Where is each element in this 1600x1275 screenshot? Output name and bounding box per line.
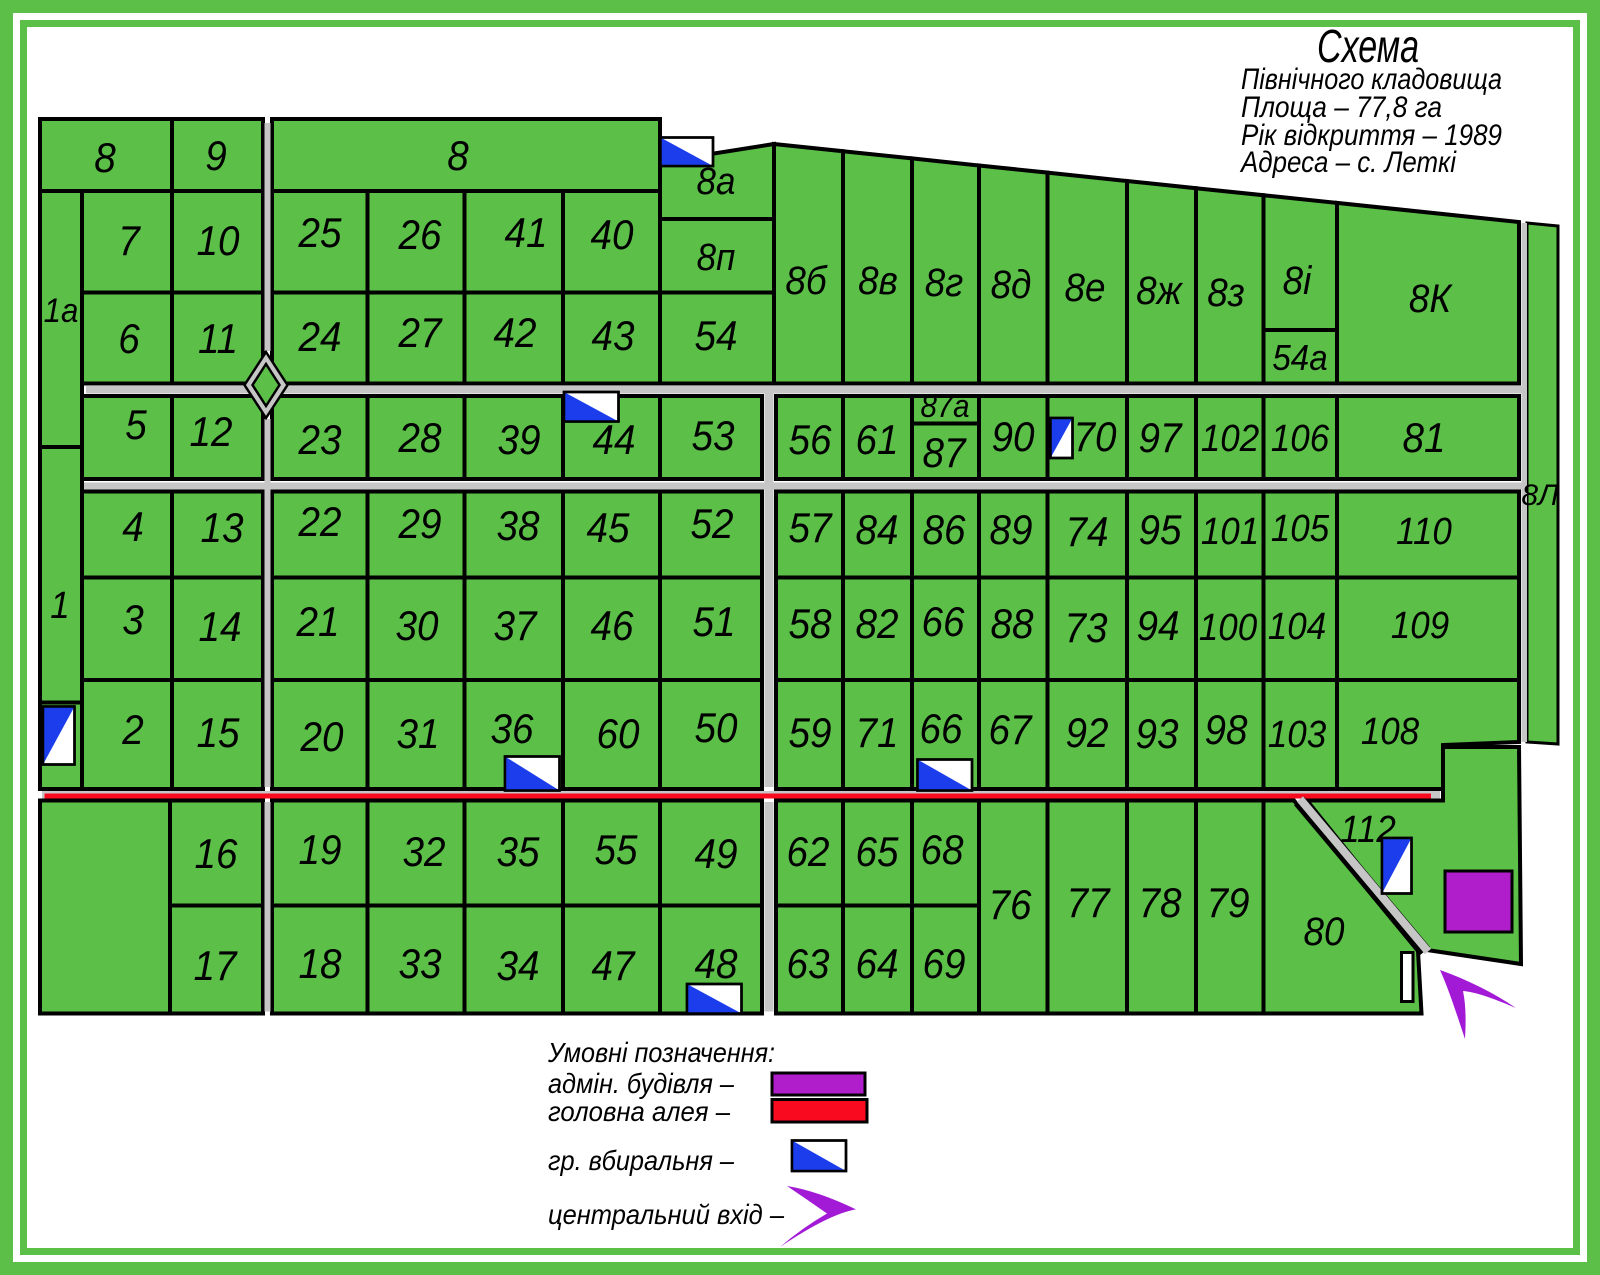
svg-text:109: 109 xyxy=(1391,604,1449,647)
svg-text:74: 74 xyxy=(1066,507,1109,555)
svg-text:8з: 8з xyxy=(1207,271,1245,316)
svg-text:92: 92 xyxy=(1066,708,1109,756)
svg-text:63: 63 xyxy=(787,939,831,987)
svg-text:59: 59 xyxy=(789,708,832,756)
svg-text:39: 39 xyxy=(498,415,541,463)
svg-text:14: 14 xyxy=(199,602,242,650)
svg-text:8К: 8К xyxy=(1409,277,1453,322)
svg-text:73: 73 xyxy=(1065,603,1109,651)
svg-text:11: 11 xyxy=(198,314,238,362)
svg-text:адмін. будівля –: адмін. будівля – xyxy=(548,1068,734,1099)
svg-text:46: 46 xyxy=(591,601,635,649)
svg-text:18: 18 xyxy=(299,939,343,987)
svg-text:6: 6 xyxy=(118,314,140,362)
svg-text:98: 98 xyxy=(1205,705,1249,753)
svg-text:25: 25 xyxy=(298,208,342,256)
svg-text:40: 40 xyxy=(591,210,635,258)
svg-text:105: 105 xyxy=(1271,507,1330,550)
svg-text:13: 13 xyxy=(201,503,245,551)
svg-text:8в: 8в xyxy=(858,259,898,304)
svg-text:36: 36 xyxy=(491,704,535,752)
svg-text:101: 101 xyxy=(1201,510,1259,553)
svg-text:76: 76 xyxy=(989,880,1033,928)
svg-text:38: 38 xyxy=(497,501,541,549)
svg-text:21: 21 xyxy=(296,597,340,645)
svg-text:48: 48 xyxy=(695,939,739,987)
svg-text:82: 82 xyxy=(856,599,899,647)
svg-text:26: 26 xyxy=(398,210,442,258)
svg-text:87: 87 xyxy=(923,428,967,476)
svg-text:53: 53 xyxy=(692,411,736,459)
svg-text:110: 110 xyxy=(1396,510,1452,553)
svg-text:9: 9 xyxy=(205,131,226,179)
svg-text:58: 58 xyxy=(789,599,833,647)
svg-text:54: 54 xyxy=(695,311,738,359)
svg-text:61: 61 xyxy=(856,415,899,463)
svg-text:гр. вбиральня –: гр. вбиральня – xyxy=(548,1145,734,1176)
svg-text:69: 69 xyxy=(923,939,966,987)
svg-text:10: 10 xyxy=(197,216,241,264)
svg-text:Адреса – с. Леткі: Адреса – с. Леткі xyxy=(1239,146,1457,179)
svg-text:15: 15 xyxy=(197,708,241,756)
svg-text:84: 84 xyxy=(856,505,899,553)
svg-text:64: 64 xyxy=(856,939,899,987)
svg-text:57: 57 xyxy=(789,503,833,551)
svg-text:12: 12 xyxy=(190,407,233,455)
svg-text:100: 100 xyxy=(1199,606,1257,649)
svg-text:27: 27 xyxy=(398,308,443,356)
svg-text:45: 45 xyxy=(587,503,631,551)
svg-text:16: 16 xyxy=(195,829,239,877)
svg-text:головна алея –: головна алея – xyxy=(548,1096,730,1127)
svg-text:8Л: 8Л xyxy=(1521,479,1559,512)
svg-text:22: 22 xyxy=(298,497,342,545)
svg-text:89: 89 xyxy=(990,505,1033,553)
svg-text:8ж: 8ж xyxy=(1136,269,1183,314)
svg-text:центральний вхід –: центральний вхід – xyxy=(548,1199,784,1230)
svg-text:4: 4 xyxy=(122,502,143,550)
svg-text:94: 94 xyxy=(1137,601,1180,649)
svg-text:108: 108 xyxy=(1361,710,1420,753)
svg-text:51: 51 xyxy=(693,597,736,645)
svg-text:104: 104 xyxy=(1268,605,1326,648)
svg-text:19: 19 xyxy=(299,825,342,873)
svg-text:52: 52 xyxy=(691,499,734,547)
svg-text:8і: 8і xyxy=(1283,259,1313,304)
svg-text:29: 29 xyxy=(398,499,442,547)
svg-text:56: 56 xyxy=(789,415,833,463)
svg-text:2: 2 xyxy=(121,705,143,753)
svg-text:106: 106 xyxy=(1271,417,1330,460)
svg-text:8: 8 xyxy=(94,133,116,181)
svg-text:30: 30 xyxy=(396,601,440,649)
svg-text:65: 65 xyxy=(856,827,900,875)
svg-text:88: 88 xyxy=(991,599,1035,647)
svg-text:95: 95 xyxy=(1139,505,1183,553)
svg-text:70: 70 xyxy=(1074,412,1118,460)
svg-text:68: 68 xyxy=(921,825,965,873)
svg-text:41: 41 xyxy=(505,208,548,256)
svg-text:43: 43 xyxy=(592,311,636,359)
svg-text:42: 42 xyxy=(494,308,537,356)
svg-text:77: 77 xyxy=(1067,878,1111,926)
svg-text:93: 93 xyxy=(1136,709,1180,757)
svg-text:60: 60 xyxy=(597,709,641,757)
svg-text:8б: 8б xyxy=(785,259,827,304)
svg-text:55: 55 xyxy=(595,825,639,873)
svg-text:20: 20 xyxy=(300,712,344,760)
svg-text:78: 78 xyxy=(1139,878,1183,926)
svg-text:103: 103 xyxy=(1268,713,1326,756)
svg-text:8г: 8г xyxy=(925,261,964,306)
svg-text:32: 32 xyxy=(403,827,446,875)
svg-text:28: 28 xyxy=(398,413,442,461)
svg-text:71: 71 xyxy=(856,708,899,756)
svg-text:54а: 54а xyxy=(1272,339,1327,379)
svg-text:8е: 8е xyxy=(1065,266,1106,311)
svg-text:17: 17 xyxy=(194,941,238,989)
svg-text:47: 47 xyxy=(592,941,636,989)
svg-text:90: 90 xyxy=(992,412,1036,460)
svg-text:8п: 8п xyxy=(697,236,736,279)
svg-text:5: 5 xyxy=(125,400,147,448)
svg-text:97: 97 xyxy=(1139,413,1183,461)
svg-text:37: 37 xyxy=(494,601,538,649)
svg-text:66: 66 xyxy=(920,704,964,752)
svg-text:62: 62 xyxy=(787,827,830,875)
svg-text:81: 81 xyxy=(1403,413,1446,461)
svg-text:8д: 8д xyxy=(991,263,1032,308)
svg-text:1: 1 xyxy=(50,584,69,627)
svg-text:3: 3 xyxy=(122,595,144,643)
svg-text:86: 86 xyxy=(923,505,967,553)
svg-text:7: 7 xyxy=(118,216,141,264)
svg-text:50: 50 xyxy=(695,703,739,751)
svg-text:102: 102 xyxy=(1201,417,1259,460)
svg-text:67: 67 xyxy=(989,705,1033,753)
svg-text:49: 49 xyxy=(695,829,738,877)
svg-text:79: 79 xyxy=(1207,878,1250,926)
svg-text:23: 23 xyxy=(298,415,342,463)
svg-text:1a: 1a xyxy=(44,291,79,330)
svg-text:Умовні позначення:: Умовні позначення: xyxy=(547,1037,775,1068)
svg-text:34: 34 xyxy=(497,941,540,989)
svg-text:8: 8 xyxy=(447,131,469,179)
svg-text:80: 80 xyxy=(1304,910,1346,955)
svg-text:31: 31 xyxy=(397,709,440,757)
svg-text:66: 66 xyxy=(922,597,966,645)
svg-text:24: 24 xyxy=(298,312,342,360)
svg-text:33: 33 xyxy=(399,939,443,987)
svg-text:35: 35 xyxy=(497,827,541,875)
